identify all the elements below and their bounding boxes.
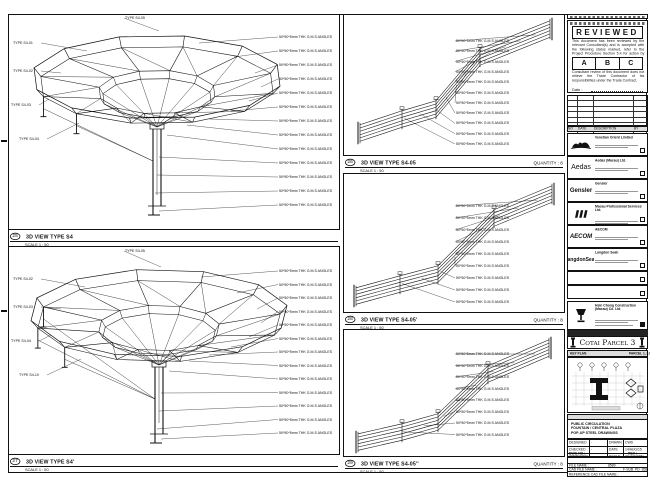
- langdon-logo: LangdonSeah: [568, 249, 594, 270]
- callout-label: 50*50*5mm THK G.M.S ANGLES: [279, 418, 332, 422]
- callout-label: 50*50*5mm THK G.M.S ANGLES: [279, 49, 332, 53]
- callout-label: 50*50*5mm THK G.M.S ANGLES: [279, 77, 332, 81]
- callout-label: 50*50*5mm THK G.M.S ANGLES: [456, 421, 509, 425]
- callout-label: 50*50*5mm THK G.M.S ANGLES: [279, 91, 332, 95]
- stamp-body-text: This document has been reviewed by the r…: [572, 39, 645, 56]
- edge-tick: [1, 310, 7, 312]
- project-name: Cotai Parcel 3: [580, 338, 636, 347]
- stamp-date-line[interactable]: Date :: [572, 85, 643, 92]
- callout-label: 50*50*5mm THK G.M.S ANGLES: [456, 352, 509, 356]
- callout-label: 50*50*5mm THK G.M.S ANGLES: [456, 433, 509, 437]
- drawing-sheet: 50*50*5mm THK G.M.S ANGLES50*50*5mm THK …: [0, 0, 650, 488]
- pylon-ornament-icon: [639, 337, 645, 348]
- consultant-box-venetian: Venetian Orient Limited: [567, 133, 648, 156]
- callout-label: 50*50*5mm THK G.M.S ANGLES: [456, 300, 509, 304]
- callout-label: TYPE S4-02: [13, 277, 33, 281]
- consultant-checkbox[interactable]: [640, 277, 645, 282]
- aedas-logo: Aedas: [568, 157, 594, 178]
- edge-tick: [1, 140, 7, 142]
- callout-label: 50*50*5mm THK G.M.S ANGLES: [279, 323, 332, 327]
- callout-label: TYPE S4-01: [13, 41, 33, 45]
- callout-label: 50*50*5mm THK G.M.S ANGLES: [279, 203, 332, 207]
- callout-label: 50*50*5mm THK G.M.S ANGLES: [279, 364, 332, 368]
- key-plan-header: KEY PLAN PARCEL 1, LOT 2: [567, 350, 648, 357]
- consultant-checkbox[interactable]: [640, 291, 645, 296]
- consultant-address-lines: [595, 260, 645, 263]
- consultant-list: Venetian Orient LimitedAedasAedas (Macau…: [567, 133, 648, 299]
- view-panel-type-s4-05: 50*50*5mm THK G.M.S ANGLES50*50*5mm THK …: [343, 14, 565, 156]
- wireframe-tube-assembly: [344, 330, 565, 457]
- callout-label: 50*50*5mm THK G.M.S ANGLES: [456, 375, 509, 379]
- view-number-badge: 28: [345, 316, 355, 323]
- quantity-label: QUANTITY : 8: [534, 462, 563, 467]
- reference-cad-file-row: REFERENCE CAD FILE NAME :: [567, 472, 648, 476]
- view-title: 3D VIEW TYPE S4-05'': [361, 462, 419, 467]
- callout-label: 50*50*5mm THK G.M.S ANGLES: [456, 364, 509, 368]
- consultant-checkbox[interactable]: [640, 217, 645, 222]
- reviewed-title: REVIEWED: [572, 26, 643, 39]
- revision-table-header: NO DATE DESCRIPTION BY: [567, 126, 648, 132]
- consultant-box-gensler: GenslerGensler: [567, 179, 648, 202]
- callout-label: 50*50*5mm THK G.M.S ANGLES: [456, 91, 509, 95]
- consultant-address-lines: [595, 237, 645, 240]
- grade-c-cell[interactable]: C: [620, 58, 642, 69]
- aecom-logo: AECOM: [568, 226, 594, 247]
- callout-label: 50*50*5mm THK G.M.S ANGLES: [279, 189, 332, 193]
- view-panel-type-s4-05-doubleprime: 50*50*5mm THK G.M.S ANGLES50*50*5mm THK …: [343, 329, 565, 457]
- building-footprint: [590, 378, 608, 400]
- consultant-name: Macau Professional Services Ltd.: [595, 205, 644, 212]
- stamp-header-strip: [570, 22, 645, 25]
- callout-label: 50*50*5mm THK G.M.S ANGLES: [279, 133, 332, 137]
- consultant-address-lines: [595, 221, 645, 224]
- callout-label: 50*50*5mm THK G.M.S ANGLES: [456, 288, 509, 292]
- callout-label: 50*50*5mm THK G.M.S ANGLES: [279, 63, 332, 67]
- callout-label: 50*50*5mm THK G.M.S ANGLES: [279, 35, 332, 39]
- mps-logo: [568, 203, 594, 224]
- callout-label: TYPE S4-04: [19, 137, 39, 141]
- wireframe-tube-assembly: [344, 15, 565, 156]
- venetian-logo: [568, 134, 594, 155]
- callout-label: 50*50*5mm THK G.M.S ANGLES: [456, 60, 509, 64]
- callout-label: 50*50*5mm THK G.M.S ANGLES: [456, 204, 509, 208]
- callout-label: 50*50*5mm THK G.M.S ANGLES: [279, 119, 332, 123]
- callout-label: 50*50*5mm THK G.M.S ANGLES: [279, 283, 332, 287]
- callout-label: 50*50*5mm THK G.M.S ANGLES: [456, 228, 509, 232]
- callout-label: 50*50*5mm THK G.M.S ANGLES: [456, 216, 509, 220]
- consultant-name: Langdon Seah: [595, 251, 644, 255]
- callout-label: 50*50*5mm THK G.M.S ANGLES: [279, 391, 332, 395]
- callout-label: TYPE S4-02: [13, 69, 33, 73]
- status-grade-row: A B C: [572, 57, 643, 70]
- reviewed-stamp: REVIEWED This document has been reviewed…: [567, 20, 648, 93]
- view-panel-type-s4-prime: 50*50*5mm THK G.M.S ANGLES50*50*5mm THK …: [8, 246, 340, 455]
- consultant-checkbox[interactable]: [640, 148, 645, 153]
- callout-label: TYPE S4-10: [19, 373, 39, 377]
- title-block: REVIEWED This document has been reviewed…: [567, 14, 648, 473]
- consultant-box-empty: [567, 271, 648, 285]
- key-plan-map: [567, 357, 648, 413]
- callout-label: 50*50*5mm THK G.M.S ANGLES: [456, 70, 509, 74]
- wireframe-tube-assembly: [344, 174, 565, 313]
- view-panel-type-s4-05-prime: 50*50*5mm THK G.M.S ANGLES50*50*5mm THK …: [343, 173, 565, 313]
- consultant-checkbox[interactable]: [640, 171, 645, 176]
- callout-label: 50*50*5mm THK G.M.S ANGLES: [456, 142, 509, 146]
- stamp-note-text: Consultant review of this document does …: [572, 70, 645, 83]
- consultant-address-lines: [595, 168, 645, 171]
- callout-label: 50*50*5mm THK G.M.S ANGLES: [456, 276, 509, 280]
- callout-label: 50*50*5mm THK G.M.S ANGLES: [456, 410, 509, 414]
- grade-a-cell[interactable]: A: [573, 58, 596, 69]
- callout-label: 50*50*5mm THK G.M.S ANGLES: [456, 39, 509, 43]
- pylon-ornament-icon: [570, 337, 576, 348]
- callout-label: TYPE S4-03: [11, 103, 31, 107]
- callout-label: 50*50*5mm THK G.M.S ANGLES: [456, 111, 509, 115]
- view-caption: 29 3D VIEW TYPE S4-05'' QUANTITY : 8 SCA…: [345, 458, 563, 477]
- view-number-badge: 25: [10, 233, 20, 240]
- contractor-logo-icon: [568, 302, 594, 329]
- callout-label: 50*50*5mm THK G.M.S ANGLES: [279, 147, 332, 151]
- consultant-box-aedas: AedasAedas (Macau) Ltd.: [567, 156, 648, 179]
- callout-label: TYPE S4-05: [125, 16, 145, 20]
- callout-label: 50*50*5mm THK G.M.S ANGLES: [456, 121, 509, 125]
- contractor-address-lines: [595, 320, 645, 326]
- drawing-title-text: PUBLIC CIRCULATION FOUNTAIN / CENTRAL PL…: [567, 420, 648, 439]
- callout-label: TYPE S4-04: [11, 339, 31, 343]
- view-scale: SCALE 1 : 50: [360, 470, 482, 474]
- consultant-checkbox[interactable]: [640, 240, 645, 245]
- callout-label: 50*50*5mm THK G.M.S ANGLES: [279, 310, 332, 314]
- callout-label: 50*50*5mm THK G.M.S ANGLES: [279, 296, 332, 300]
- consultant-address-lines: [595, 191, 645, 194]
- view-title: 3D VIEW TYPE S4': [26, 460, 74, 465]
- consultant-checkbox[interactable]: [640, 194, 645, 199]
- consultant-box-mps: Macau Professional Services Ltd.: [567, 202, 648, 225]
- quantity-label: QUANTITY : 8: [534, 318, 563, 323]
- view-number-badge: 26: [345, 159, 355, 166]
- callout-label: 50*50*5mm THK G.M.S ANGLES: [456, 49, 509, 53]
- consultant-address-lines: [595, 145, 645, 148]
- callout-label: 50*50*5mm THK G.M.S ANGLES: [279, 337, 332, 341]
- callout-label: 50*50*5mm THK G.M.S ANGLES: [279, 105, 332, 109]
- view-title: 3D VIEW TYPE S4-05: [361, 161, 416, 166]
- gensler-logo: Gensler: [568, 180, 594, 201]
- view-number-badge: 27: [10, 458, 20, 465]
- date-fill-line: [591, 86, 643, 92]
- consultant-box-langdon: LangdonSeahLangdon Seah: [567, 248, 648, 271]
- view-title: 3D VIEW TYPE S4: [26, 235, 73, 240]
- callout-label: 50*50*5mm THK G.M.S ANGLES: [456, 387, 509, 391]
- none-logo: [568, 272, 594, 284]
- callout-label: 50*50*5mm THK G.M.S ANGLES: [456, 252, 509, 256]
- consultant-name: Venetian Orient Limited: [595, 136, 644, 140]
- view-scale: SCALE 1 : 50: [25, 468, 213, 472]
- revision-table: [567, 95, 648, 126]
- callout-label: TYPE S4-05: [125, 249, 145, 253]
- date-label: Date :: [572, 88, 582, 92]
- contractor-name: Hsin Chong Construction (Macau) Co. Ltd.: [595, 304, 644, 311]
- callout-label: 50*50*5mm THK G.M.S ANGLES: [456, 264, 509, 268]
- callout-label: 50*50*5mm THK G.M.S ANGLES: [456, 101, 509, 105]
- callout-label: TYPE S4-03: [13, 305, 33, 309]
- consultant-name: Gensler: [595, 182, 644, 186]
- view-title: 3D VIEW TYPE S4-05': [361, 318, 417, 323]
- consultant-name: AECOM: [595, 228, 644, 232]
- callout-label: 50*50*5mm THK G.M.S ANGLES: [279, 269, 332, 273]
- grade-b-cell[interactable]: B: [596, 58, 619, 69]
- callout-label: 50*50*5mm THK G.M.S ANGLES: [456, 132, 509, 136]
- none-logo: [568, 286, 594, 298]
- callout-label: 50*50*5mm THK G.M.S ANGLES: [279, 161, 332, 165]
- callout-label: 50*50*5mm THK G.M.S ANGLES: [279, 404, 332, 408]
- project-title-box: Cotai Parcel 3: [567, 336, 648, 349]
- consultant-box-empty: [567, 285, 648, 299]
- callout-label: 50*50*5mm THK G.M.S ANGLES: [456, 80, 509, 84]
- view-number-badge: 29: [345, 460, 355, 467]
- consultant-checkbox[interactable]: [640, 263, 645, 268]
- consultant-name: Aedas (Macau) Ltd.: [595, 159, 644, 163]
- callout-label: 50*50*5mm THK G.M.S ANGLES: [279, 377, 332, 381]
- view-panel-type-s4: 50*50*5mm THK G.M.S ANGLES50*50*5mm THK …: [8, 14, 340, 230]
- fine-print-strip: [567, 14, 648, 19]
- callout-label: 50*50*5mm THK G.M.S ANGLES: [279, 431, 332, 435]
- consultant-box-aecom: AECOMAECOM: [567, 225, 648, 248]
- callout-label: 50*50*5mm THK G.M.S ANGLES: [456, 398, 509, 402]
- view-caption: 27 3D VIEW TYPE S4' SCALE 1 : 50: [10, 456, 338, 475]
- callout-label: 50*50*5mm THK G.M.S ANGLES: [279, 350, 332, 354]
- quantity-label: QUANTITY : 8: [534, 161, 563, 166]
- contractor-box: Hsin Chong Construction (Macau) Co. Ltd.: [567, 301, 648, 330]
- contractor-checkbox[interactable]: [640, 322, 645, 327]
- callout-label: 50*50*5mm THK G.M.S ANGLES: [279, 175, 332, 179]
- callout-label: 50*50*5mm THK G.M.S ANGLES: [456, 240, 509, 244]
